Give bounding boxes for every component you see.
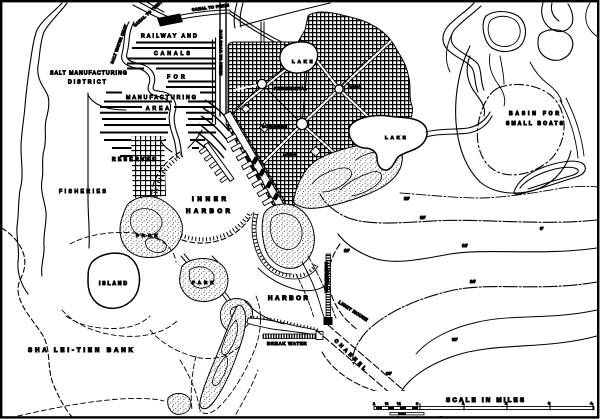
- svg-text:DISTRICT: DISTRICT: [68, 80, 107, 86]
- svg-text:RAILWAY AND: RAILWAY AND: [141, 34, 197, 40]
- svg-text:INNER: INNER: [192, 196, 227, 203]
- svg-text:8': 8': [540, 226, 543, 231]
- svg-text:FISHERIES: FISHERIES: [59, 189, 106, 195]
- svg-text:BUSINESS: BUSINESS: [262, 124, 287, 129]
- svg-text:BASIN FOR: BASIN FOR: [509, 111, 559, 117]
- svg-text:FOR: FOR: [167, 75, 185, 81]
- svg-text:12': 12': [462, 243, 468, 248]
- svg-text:AREA: AREA: [348, 84, 362, 89]
- svg-text:BREAKWATER: BREAKWATER: [324, 262, 328, 293]
- svg-text:RESIDENTIAL: RESIDENTIAL: [274, 86, 307, 91]
- svg-text:SALT MANUFACTURING: SALT MANUFACTURING: [50, 71, 127, 77]
- svg-text:RAILROAD TO PEKIN: RAILROAD TO PEKIN: [219, 30, 223, 76]
- svg-text:SMALL BOATS: SMALL BOATS: [506, 121, 564, 127]
- svg-text:18': 18': [404, 196, 410, 201]
- svg-text:30': 30': [452, 337, 458, 342]
- svg-text:ISLAND: ISLAND: [99, 281, 127, 287]
- svg-text:BREAK WATER: BREAK WATER: [267, 341, 307, 346]
- svg-text:RESERVED: RESERVED: [112, 157, 156, 163]
- svg-text:18': 18': [344, 248, 350, 253]
- svg-text:24': 24': [470, 279, 476, 284]
- svg-text:36': 36': [386, 371, 392, 376]
- svg-text:10': 10': [420, 215, 426, 220]
- svg-text:AREA: AREA: [283, 152, 297, 157]
